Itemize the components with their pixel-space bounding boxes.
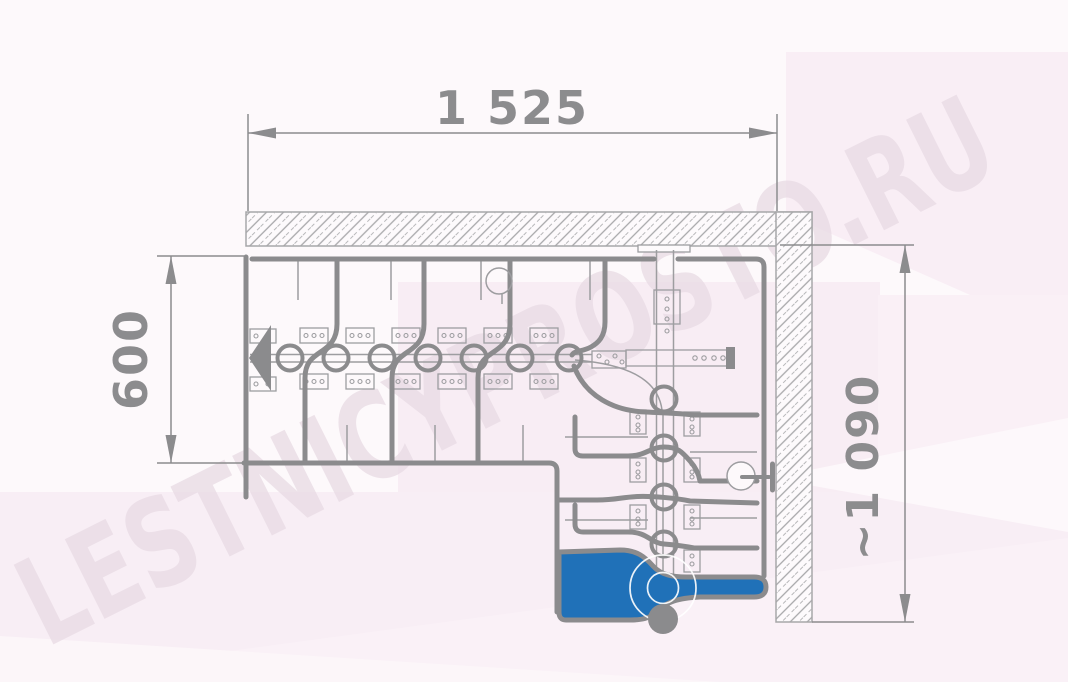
wall-mount-plate: [638, 245, 690, 252]
wall-right: [776, 212, 812, 622]
staircase-plan-drawing: LESTNICYPROSTO.RU: [0, 0, 1068, 682]
dimension-left-label: 600: [104, 308, 158, 410]
wall-top: [246, 212, 812, 246]
dimension-top-label: 1 525: [435, 81, 589, 135]
dimension-right-label: ~1 090: [838, 374, 889, 561]
support-post: [648, 604, 678, 634]
